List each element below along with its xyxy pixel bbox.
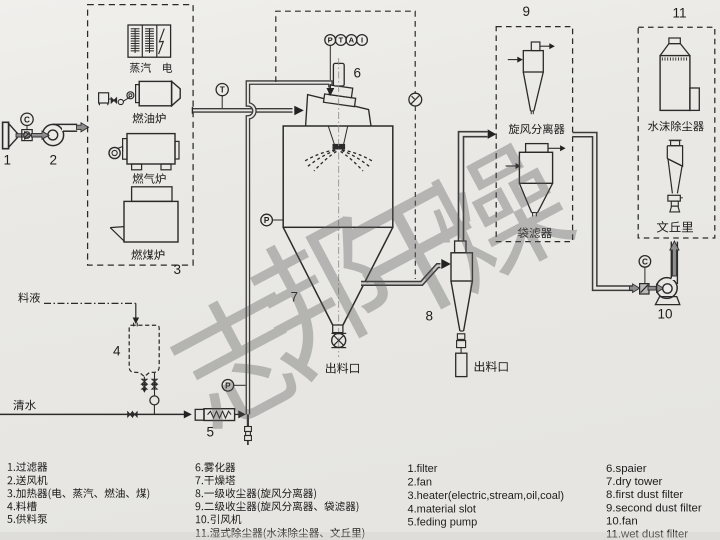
svg-text:9: 9 — [523, 4, 531, 19]
svg-text:C: C — [642, 257, 648, 266]
svg-text:6: 6 — [354, 66, 362, 81]
svg-text:3: 3 — [174, 262, 182, 277]
svg-text:T: T — [338, 36, 343, 45]
svg-text:3.heater(electric,stream,oil,c: 3.heater(electric,stream,oil,coal) — [408, 490, 565, 502]
svg-text:6.spaier: 6.spaier — [606, 463, 647, 475]
svg-text:P: P — [264, 216, 270, 225]
svg-text:C: C — [24, 115, 30, 124]
svg-text:P: P — [328, 36, 333, 45]
svg-text:10: 10 — [658, 307, 673, 322]
svg-text:2: 2 — [50, 153, 58, 168]
svg-text:5.feding pump: 5.feding pump — [408, 517, 478, 529]
svg-text:T: T — [220, 86, 225, 95]
svg-text:7.dry tower: 7.dry tower — [606, 476, 663, 488]
svg-text:1: 1 — [4, 153, 12, 168]
svg-text:1.filter: 1.filter — [408, 463, 438, 475]
svg-text:9.second dust filter: 9.second dust filter — [606, 503, 702, 515]
svg-text:I: I — [361, 36, 363, 45]
svg-text:A: A — [349, 36, 355, 45]
svg-text:11: 11 — [673, 6, 687, 21]
svg-text:4.material slot: 4.material slot — [408, 504, 476, 516]
svg-text:8.first dust filter: 8.first dust filter — [606, 489, 683, 501]
svg-text:8: 8 — [426, 309, 434, 324]
svg-text:4: 4 — [113, 344, 121, 359]
svg-text:10.fan: 10.fan — [606, 516, 638, 528]
svg-text:2.fan: 2.fan — [408, 477, 432, 489]
